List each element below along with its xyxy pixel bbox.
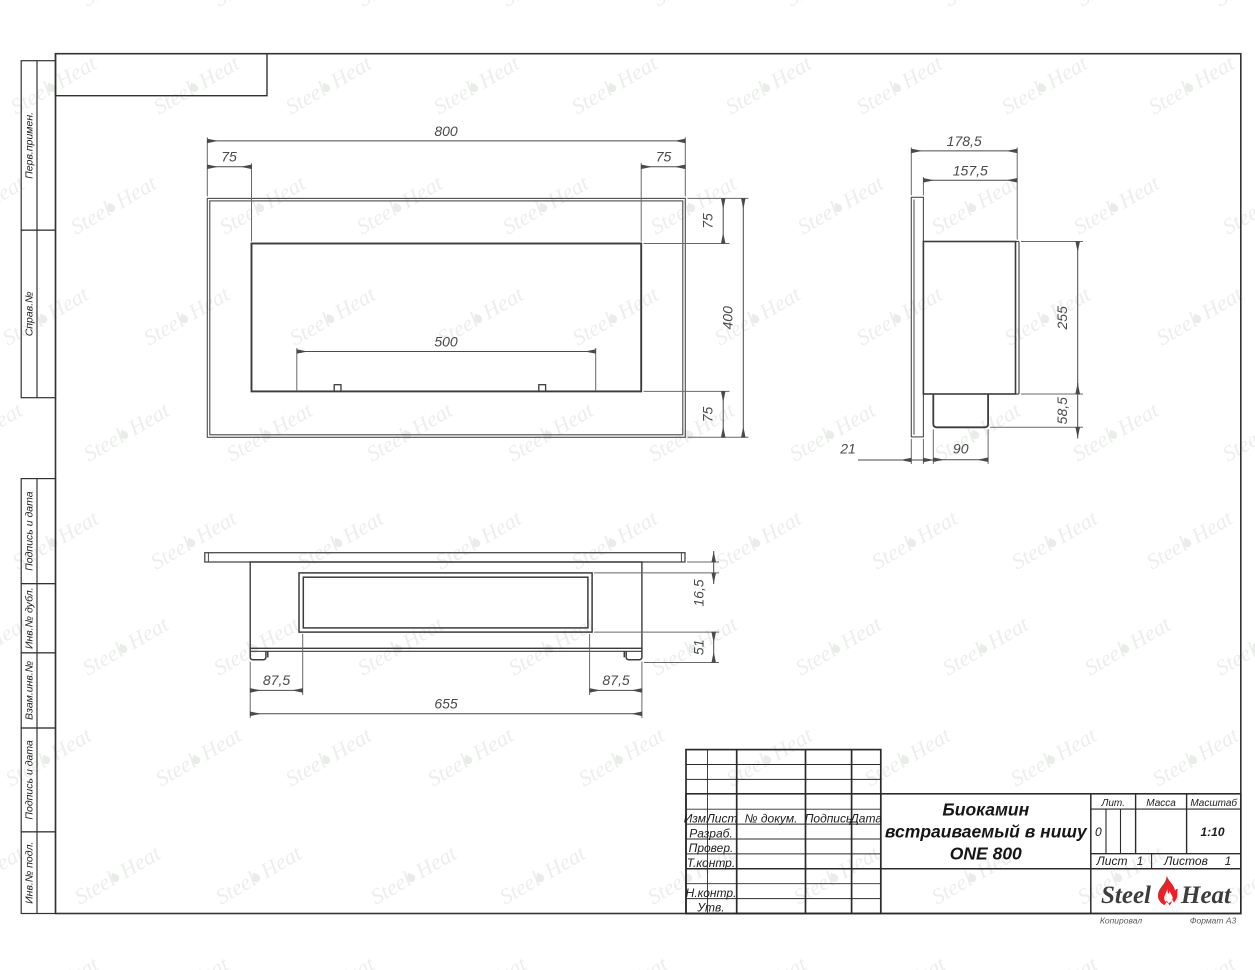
svg-text:Heat: Heat	[1180, 882, 1232, 909]
svg-text:Подпись и дата: Подпись и дата	[23, 491, 35, 571]
svg-text:№ докум.: № докум.	[745, 812, 798, 826]
svg-text:Лист: Лист	[706, 812, 738, 826]
svg-text:21: 21	[839, 441, 856, 457]
svg-text:Лит.: Лит.	[1100, 798, 1124, 809]
svg-text:157,5: 157,5	[953, 162, 988, 178]
svg-text:Листов: Листов	[1163, 854, 1208, 868]
svg-text:255: 255	[1054, 306, 1070, 331]
svg-text:Лист: Лист	[1096, 854, 1128, 868]
svg-text:75: 75	[700, 213, 716, 229]
svg-text:1:10: 1:10	[1200, 825, 1224, 839]
svg-text:90: 90	[953, 441, 969, 457]
svg-text:800: 800	[434, 123, 458, 139]
svg-text:Steel: Steel	[1101, 882, 1151, 909]
svg-text:87,5: 87,5	[263, 672, 290, 688]
svg-text:Подпись и дата: Подпись и дата	[23, 740, 35, 820]
svg-text:Перв.примен.: Перв.примен.	[23, 112, 35, 179]
svg-text:Н.контр.: Н.контр.	[686, 886, 737, 900]
svg-text:Дата: Дата	[848, 812, 882, 826]
svg-text:Справ.№: Справ.№	[23, 291, 35, 336]
svg-text:655: 655	[434, 696, 458, 712]
svg-text:Изм.: Изм.	[684, 812, 710, 826]
svg-text:Копировал: Копировал	[1100, 916, 1142, 926]
svg-text:Инв.№ подл.: Инв.№ подл.	[23, 842, 35, 904]
svg-text:Т.контр.: Т.контр.	[687, 856, 735, 870]
svg-text:75: 75	[700, 407, 716, 423]
svg-text:Провер.: Провер.	[689, 841, 734, 855]
svg-text:Взам.инв.№: Взам.инв.№	[23, 661, 35, 720]
svg-text:0: 0	[1095, 825, 1102, 839]
svg-text:Масштаб: Масштаб	[1190, 797, 1237, 809]
svg-text:встраиваемый в нишу: встраиваемый в нишу	[885, 822, 1088, 842]
svg-text:58,5: 58,5	[1054, 397, 1070, 424]
svg-text:1: 1	[1225, 854, 1232, 868]
svg-text:75: 75	[656, 149, 672, 165]
svg-text:400: 400	[720, 306, 736, 330]
svg-text:Утв.: Утв.	[696, 900, 724, 914]
svg-text:16,5: 16,5	[691, 579, 707, 606]
svg-text:Биокамин: Биокамин	[942, 800, 1029, 820]
svg-text:Инв.№ дубл.: Инв.№ дубл.	[23, 587, 35, 649]
svg-text:Масса: Масса	[1146, 798, 1176, 809]
svg-text:75: 75	[221, 149, 237, 165]
svg-text:Подпись: Подпись	[805, 812, 853, 826]
svg-text:1: 1	[1137, 854, 1144, 868]
svg-text:51: 51	[691, 640, 707, 656]
svg-text:178,5: 178,5	[947, 133, 982, 149]
svg-text:500: 500	[434, 334, 458, 350]
svg-text:87,5: 87,5	[602, 672, 629, 688]
svg-text:Разраб.: Разраб.	[689, 826, 732, 840]
svg-text:ONE 800: ONE 800	[950, 844, 1022, 864]
svg-text:Формат А3: Формат А3	[1190, 916, 1237, 926]
